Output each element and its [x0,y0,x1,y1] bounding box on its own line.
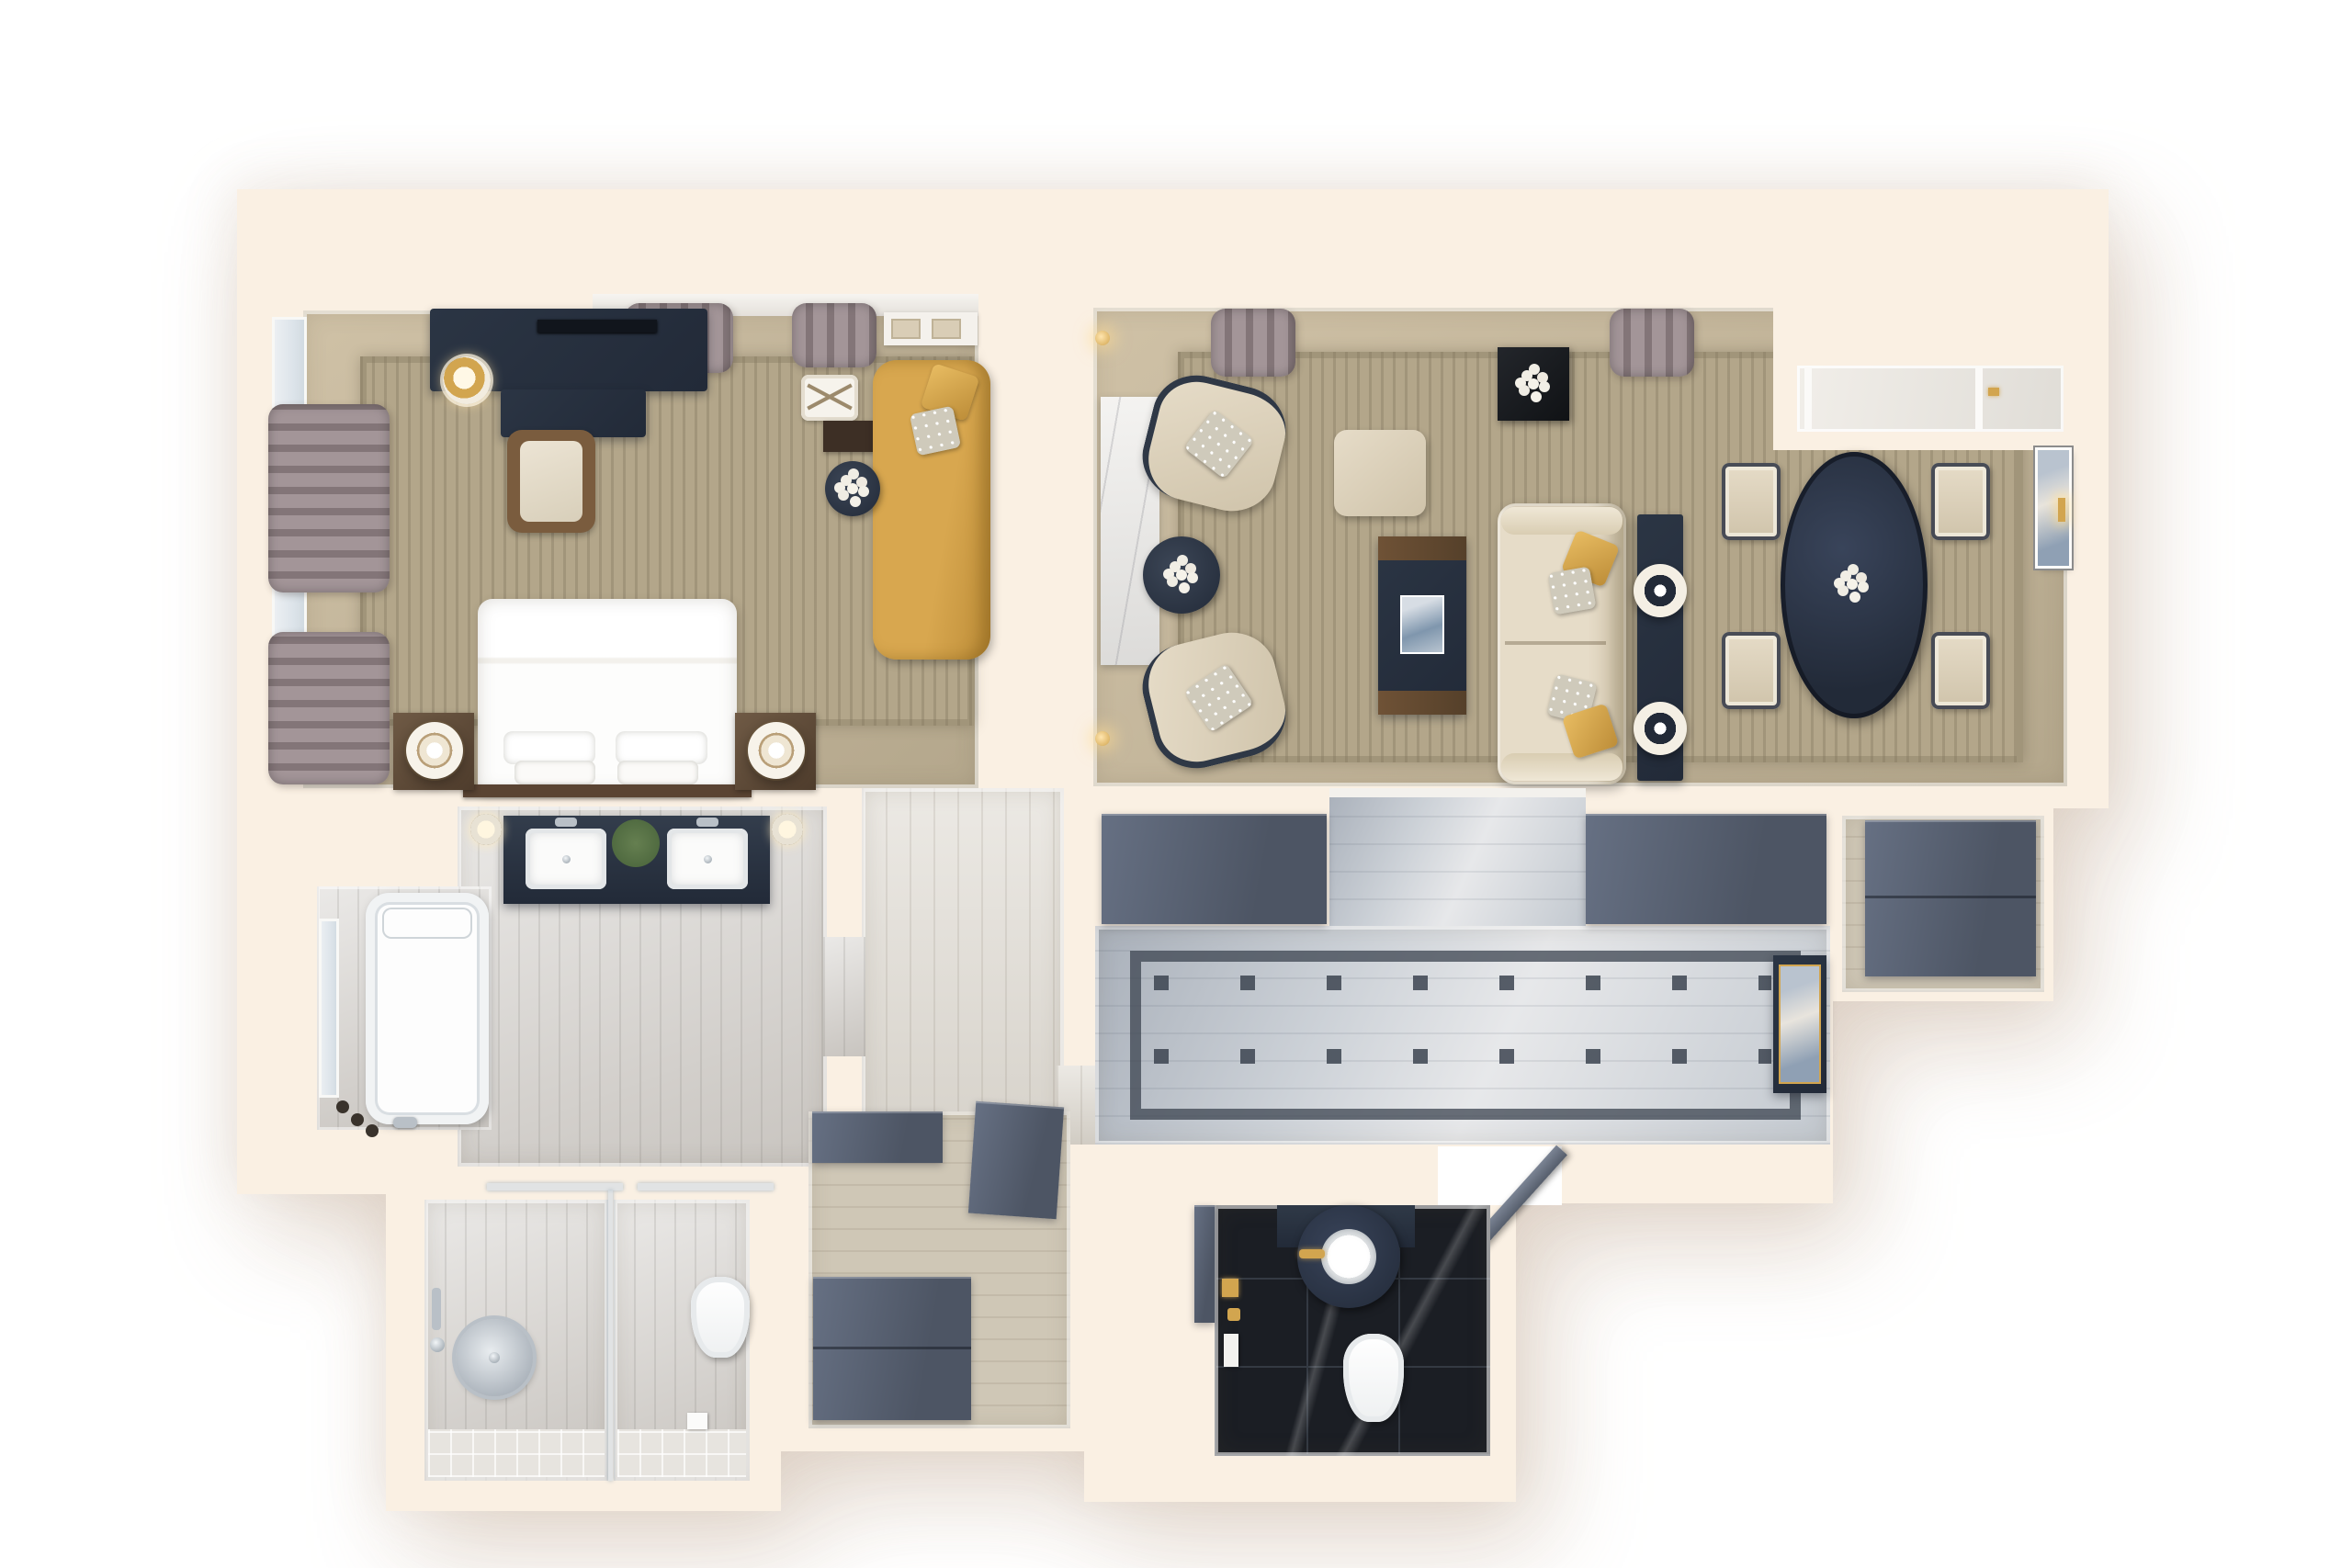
wc-toilet [691,1277,750,1358]
right-wardrobe-front [1865,820,2036,976]
hall-dot-row-bottom [1154,1049,1771,1064]
vanity-plant [612,819,660,867]
sofa-armrest-bottom [1501,753,1623,781]
table-lamp-left [406,722,463,779]
sink-drain-right [704,855,712,863]
passage-planks [1329,788,1586,928]
shower-valve [430,1337,445,1352]
room-right-closet [1842,816,2044,992]
hall-dot-row-top [1154,976,1771,990]
vestibule-threshold-1 [1804,367,1812,430]
entry-vestibule-floor [1797,366,2064,432]
tub-window [319,919,339,1098]
vanity-sconce-left [470,814,502,845]
tub-faucet [393,1117,417,1128]
vanity-sconce-right [772,814,803,845]
room-entry-hall [1095,926,1830,1145]
powder-sink [1321,1229,1376,1284]
sofa [1498,503,1626,784]
dining-art-sconce [2058,498,2065,522]
desk-chair [507,430,595,533]
powder-gold-hook [1227,1308,1240,1321]
closet-cabinet-seam [813,1347,971,1349]
round-table-flowers [1176,570,1187,581]
powder-towel [1224,1334,1238,1367]
headboard [463,784,752,797]
tub-knob-1 [336,1100,349,1113]
rain-shower-head [456,1319,533,1396]
console-lamp-top [1634,564,1687,617]
living-sconce-lower [1095,731,1110,746]
sofa-armrest-top [1501,507,1623,535]
bed-pillow-2 [616,731,707,764]
suite-floor-plan [0,0,2352,1568]
shower-door-right [638,1183,774,1190]
side-tray-table [823,421,875,452]
right-wardrobe-seam [1865,896,2036,898]
room-wc [614,1200,750,1481]
room-shower [424,1200,608,1481]
shower-tile-floor [428,1429,605,1477]
dining-chair-right-top [1931,463,1990,540]
hand-shower [432,1288,441,1330]
magazine [1402,597,1442,652]
bedroom-curtain-left-upper [268,404,390,592]
bathtub [366,893,489,1124]
console-lamp-bottom [1634,702,1687,755]
bed-pillow-3 [514,761,595,784]
floor-plan-canvas [0,0,2352,1568]
hall-living-passage [1329,788,1586,928]
hall-console [1773,955,1826,1093]
hall-console-art [1781,966,1819,1082]
vestibule-threshold-2 [1975,367,1983,430]
hall-wardrobe-right [1586,814,1826,924]
tub-headrest [382,908,472,939]
room-powder [1215,1205,1490,1456]
powder-toilet [1343,1334,1404,1422]
vanity-sink-right [667,829,748,889]
chaise-lounge [873,360,990,660]
closet-cabinet [813,1277,971,1420]
coffee-table [1378,536,1466,715]
living-curtain-top-2 [1610,309,1694,377]
bedroom-curtain-left-lower [268,632,390,784]
shower-door-left [487,1183,623,1190]
flower-bouquet [847,483,858,494]
powder-faucet [1299,1249,1325,1258]
faucet-right [696,818,718,827]
bed-pillow-4 [617,761,698,784]
bath-corridor-connector [823,937,865,1056]
powder-basin [1297,1205,1400,1308]
dining-table [1781,452,1928,718]
living-sconce-upper [1095,331,1110,345]
coffee-table-wood-top [1378,536,1466,560]
tub-knob-2 [351,1113,364,1126]
shower-wc-partition [608,1190,613,1481]
sofa-pillow-pattern-top [1547,566,1596,615]
sink-drain-left [562,855,571,863]
tub-knob-3 [366,1124,379,1137]
shower-head-center [489,1352,500,1363]
dining-chair-left-top [1722,463,1781,540]
sofa-seat-split [1505,641,1606,645]
bed-pillow-1 [503,731,595,764]
tray-1 [891,319,921,339]
living-round-table [1143,536,1220,614]
vanity-counter [503,816,770,904]
black-table-flowers [1528,378,1539,389]
chaise-pillow-pattern [910,406,962,457]
dining-centerpiece [1847,579,1858,590]
armchair-top-pillow [1183,409,1254,479]
passage-threshold [1329,788,1586,797]
bedroom-curtain-top-2 [792,303,876,367]
powder-door [1194,1205,1215,1323]
desk-lamp [443,356,491,404]
room-closet [808,1111,1070,1428]
dining-chair-right-bottom [1931,632,1990,709]
table-lamp-right [748,722,805,779]
faucet-left [555,818,577,827]
living-curtain-top-1 [1211,309,1295,377]
vestibule-keycard [1988,388,1999,396]
tray-2 [932,319,961,339]
wc-tile-floor [617,1429,746,1477]
desk-chair-cushion [520,441,582,522]
bedroom-flower-table [825,461,880,516]
luggage-rack [801,375,858,421]
wc-paper-holder [687,1413,707,1429]
bed [478,599,737,792]
ottoman [1334,430,1426,516]
armchair-bottom-pillow [1183,663,1254,733]
coffee-table-wood-bottom [1378,691,1466,715]
hall-wardrobe-left [1102,814,1327,924]
vanity-sink-left [526,829,606,889]
powder-paper-holder [1222,1279,1238,1297]
tv-screen [537,320,657,333]
black-flower-table [1498,347,1569,421]
closet-door [968,1101,1064,1219]
tray-cabinet [884,312,978,345]
closet-upper-band [812,1111,943,1163]
dining-chair-left-bottom [1722,632,1781,709]
